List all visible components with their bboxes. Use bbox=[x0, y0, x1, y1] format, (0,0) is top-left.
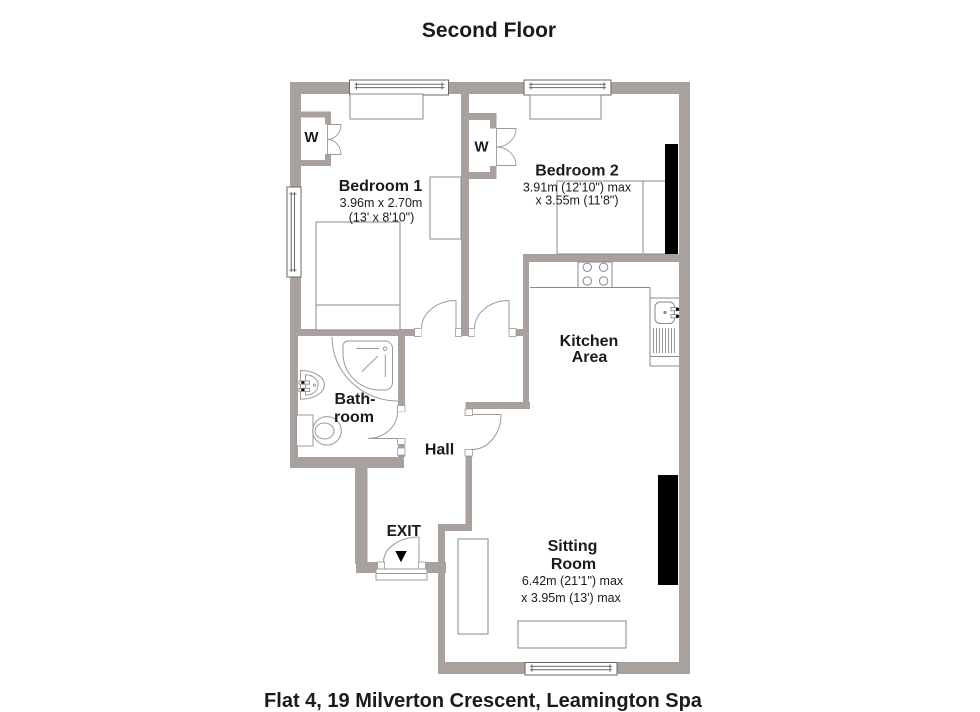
svg-text:x 3.95m (13') max: x 3.95m (13') max bbox=[521, 591, 621, 605]
svg-text:3.91m (12'10") max: 3.91m (12'10") max bbox=[523, 181, 632, 195]
svg-text:Area: Area bbox=[572, 349, 608, 366]
svg-text:(13' x 8'10"): (13' x 8'10") bbox=[349, 211, 415, 225]
svg-text:Sitting: Sitting bbox=[548, 538, 598, 555]
svg-text:W: W bbox=[304, 129, 319, 146]
svg-text:Bedroom 1: Bedroom 1 bbox=[339, 178, 423, 195]
svg-text:room: room bbox=[334, 409, 374, 426]
svg-text:Bedroom 2: Bedroom 2 bbox=[535, 163, 619, 180]
svg-text:6.42m (21'1") max: 6.42m (21'1") max bbox=[522, 574, 624, 588]
svg-text:EXIT: EXIT bbox=[387, 523, 422, 540]
svg-text:Hall: Hall bbox=[425, 442, 454, 459]
svg-text:Kitchen: Kitchen bbox=[560, 333, 619, 350]
svg-text:Second Floor: Second Floor bbox=[422, 19, 556, 42]
svg-text:3.96m x 2.70m: 3.96m x 2.70m bbox=[340, 196, 423, 210]
svg-text:W: W bbox=[474, 139, 489, 156]
svg-text:Room: Room bbox=[551, 556, 596, 573]
svg-text:x 3.55m (11'8"): x 3.55m (11'8") bbox=[535, 194, 618, 208]
svg-text:Flat 4, 19 Milverton Crescent,: Flat 4, 19 Milverton Crescent, Leamingto… bbox=[264, 690, 703, 712]
svg-text:Bath-: Bath- bbox=[335, 391, 376, 408]
